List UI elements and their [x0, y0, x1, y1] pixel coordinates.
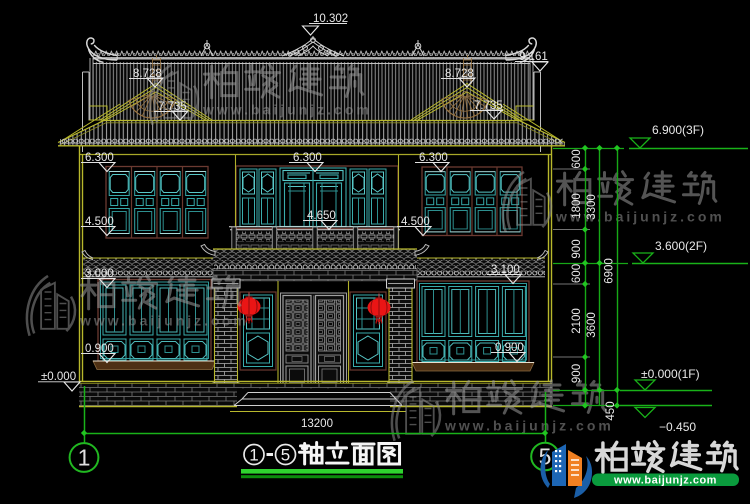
svg-text:3300: 3300 — [586, 194, 598, 220]
svg-text:±0.000: ±0.000 — [41, 371, 76, 383]
svg-text:www.baijunjz.com: www.baijunjz.com — [444, 418, 614, 434]
svg-text:450: 450 — [605, 401, 617, 420]
svg-text:−0.450: −0.450 — [659, 420, 696, 434]
svg-text:±0.000(1F): ±0.000(1F) — [641, 367, 700, 381]
svg-text:600: 600 — [571, 264, 583, 283]
svg-text:3600: 3600 — [586, 312, 598, 338]
svg-text:3.600(2F): 3.600(2F) — [655, 239, 707, 253]
svg-text:5: 5 — [281, 446, 290, 465]
svg-text:www.baijunjz.com: www.baijunjz.com — [613, 475, 717, 487]
svg-text:1800: 1800 — [571, 193, 583, 219]
svg-text:2100: 2100 — [571, 308, 583, 334]
svg-text:600: 600 — [571, 149, 583, 168]
svg-text:1: 1 — [78, 445, 91, 471]
svg-text:1: 1 — [249, 446, 258, 465]
svg-text:13200: 13200 — [301, 418, 333, 430]
svg-text:www.baijunjz.com: www.baijunjz.com — [79, 313, 249, 329]
svg-text:6.900(3F): 6.900(3F) — [652, 123, 704, 137]
svg-text:900: 900 — [571, 239, 583, 258]
svg-text:900: 900 — [571, 364, 583, 383]
svg-text:www.baijunjz.com: www.baijunjz.com — [202, 102, 372, 118]
svg-text:6900: 6900 — [604, 258, 616, 284]
